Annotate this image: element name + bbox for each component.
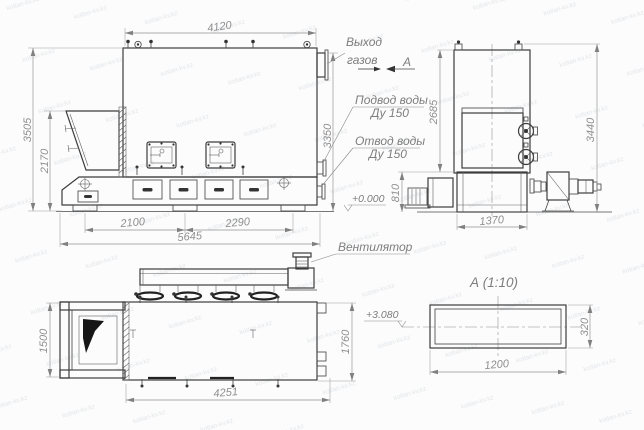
water-outlet-label: Отвод воды: [355, 134, 425, 148]
dim-label: 1760: [340, 329, 352, 354]
water-inlet-label: Ду 150: [369, 106, 409, 120]
dim-label: 3350: [322, 123, 334, 148]
dim-label: 2290: [224, 216, 251, 230]
dim-label: 320: [579, 317, 591, 336]
dim-label: 1370: [479, 214, 505, 228]
fan-label: Вентилятор: [338, 240, 413, 254]
section-title: А (1:10): [469, 275, 518, 290]
view-letter-label: А: [402, 55, 411, 69]
dim-label: 2100: [119, 216, 146, 230]
water-outlet-label: Ду 150: [367, 147, 407, 161]
gas-outlet-label: газов: [347, 53, 378, 67]
dim-label: 1200: [484, 358, 510, 372]
watermark-layer: [0, 0, 644, 430]
dim-label: 3440: [585, 117, 597, 142]
dim-label: 1500: [38, 328, 50, 353]
dim-label: 2685: [428, 99, 440, 125]
dim-label: 2170: [39, 148, 51, 174]
level-duct-label: +3.080: [366, 309, 399, 321]
water-inlet-label: Подвод воды: [355, 93, 428, 107]
dim-label: 810: [390, 183, 402, 202]
dim-label: 5645: [177, 230, 203, 244]
dim-label: 3505: [22, 117, 34, 142]
level-zero-label: +0.000: [352, 193, 385, 205]
dim-label: 4251: [213, 386, 238, 400]
gas-outlet-label: Выход: [346, 35, 382, 49]
technical-drawing-canvas: kotlan-kv.kz kotlan-kv.kz: [0, 0, 644, 430]
boiler-drawing: kotlan-kv.kz kotlan-kv.kz: [0, 0, 644, 430]
